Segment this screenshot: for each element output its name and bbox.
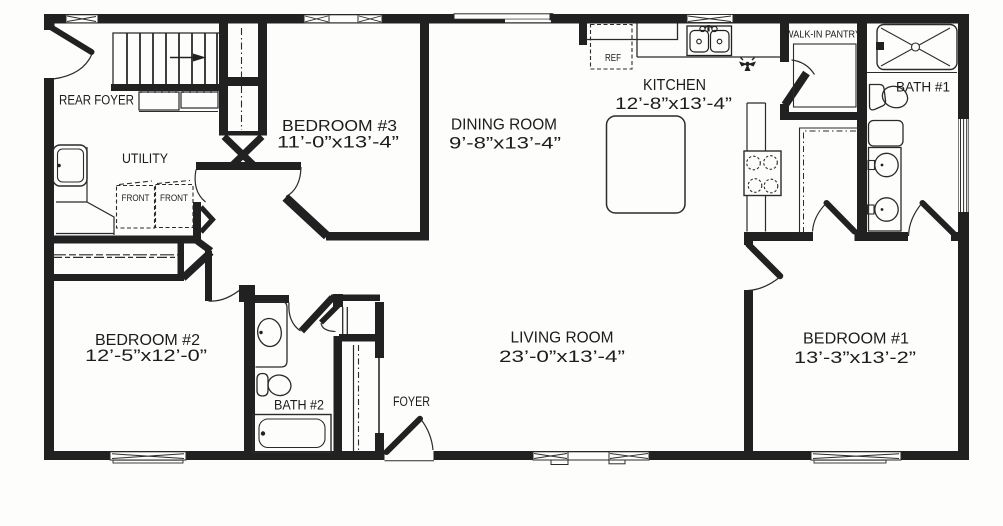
svg-text:DINING ROOM: DINING ROOM xyxy=(451,117,557,134)
svg-text:11’-0”x13’-4”: 11’-0”x13’-4” xyxy=(277,133,399,152)
svg-text:12’-8”x13’-4”: 12’-8”x13’-4” xyxy=(615,94,732,113)
svg-text:12’-5”x12’-0”: 12’-5”x12’-0” xyxy=(85,346,207,365)
svg-text:REF: REF xyxy=(605,53,621,64)
svg-text:BATH #2: BATH #2 xyxy=(274,397,324,413)
svg-text:KITCHEN: KITCHEN xyxy=(643,77,706,94)
svg-text:UTILITY: UTILITY xyxy=(122,151,168,166)
svg-text:FRONT: FRONT xyxy=(160,193,188,204)
svg-text:WALK-IN PANTRY: WALK-IN PANTRY xyxy=(785,29,861,41)
svg-text:REAR FOYER: REAR FOYER xyxy=(59,93,134,108)
svg-text:23’-0”x13’-4”: 23’-0”x13’-4” xyxy=(499,347,625,366)
svg-text:FRONT: FRONT xyxy=(122,193,150,204)
svg-text:BEDROOM #1: BEDROOM #1 xyxy=(803,330,909,347)
svg-text:FOYER: FOYER xyxy=(393,394,430,409)
svg-text:BATH #1: BATH #1 xyxy=(896,79,950,95)
svg-text:LIVING ROOM: LIVING ROOM xyxy=(511,330,614,347)
svg-text:9’-8”x13’-4”: 9’-8”x13’-4” xyxy=(449,134,561,153)
svg-text:13’-3”x13’-2”: 13’-3”x13’-2” xyxy=(794,348,916,367)
